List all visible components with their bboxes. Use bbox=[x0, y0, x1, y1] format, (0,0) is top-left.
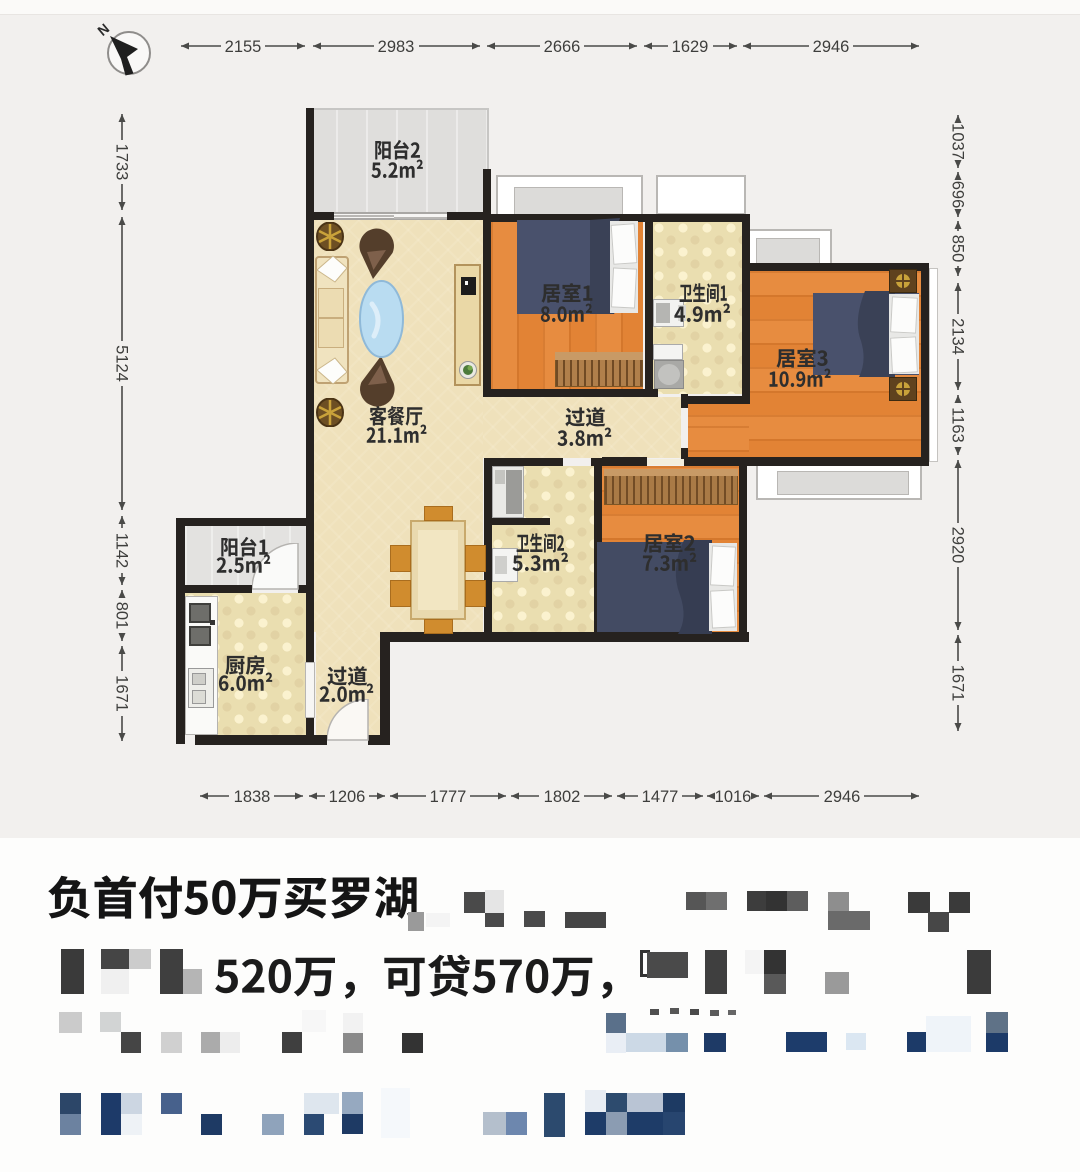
svg-text:1016: 1016 bbox=[715, 788, 752, 806]
svg-text:1671: 1671 bbox=[949, 665, 967, 702]
svg-text:1629: 1629 bbox=[672, 38, 709, 56]
svg-text:1037: 1037 bbox=[949, 123, 967, 160]
svg-text:1142: 1142 bbox=[113, 533, 131, 568]
svg-text:1671: 1671 bbox=[113, 675, 131, 712]
svg-text:1802: 1802 bbox=[544, 788, 581, 806]
svg-text:2983: 2983 bbox=[378, 38, 415, 56]
svg-text:2946: 2946 bbox=[824, 788, 861, 806]
svg-text:2946: 2946 bbox=[813, 38, 850, 56]
svg-text:1477: 1477 bbox=[642, 788, 679, 806]
svg-text:801: 801 bbox=[113, 602, 131, 630]
svg-text:1838: 1838 bbox=[234, 788, 271, 806]
svg-text:2666: 2666 bbox=[544, 38, 581, 56]
svg-text:1777: 1777 bbox=[430, 788, 467, 806]
svg-text:2155: 2155 bbox=[225, 38, 262, 56]
svg-text:1163: 1163 bbox=[949, 407, 967, 442]
svg-text:850: 850 bbox=[949, 235, 967, 263]
svg-text:2920: 2920 bbox=[949, 527, 967, 564]
svg-text:2134: 2134 bbox=[949, 318, 967, 355]
svg-text:1733: 1733 bbox=[113, 144, 131, 181]
svg-text:696: 696 bbox=[949, 181, 967, 209]
svg-text:1206: 1206 bbox=[329, 788, 366, 806]
svg-text:5124: 5124 bbox=[113, 345, 131, 382]
